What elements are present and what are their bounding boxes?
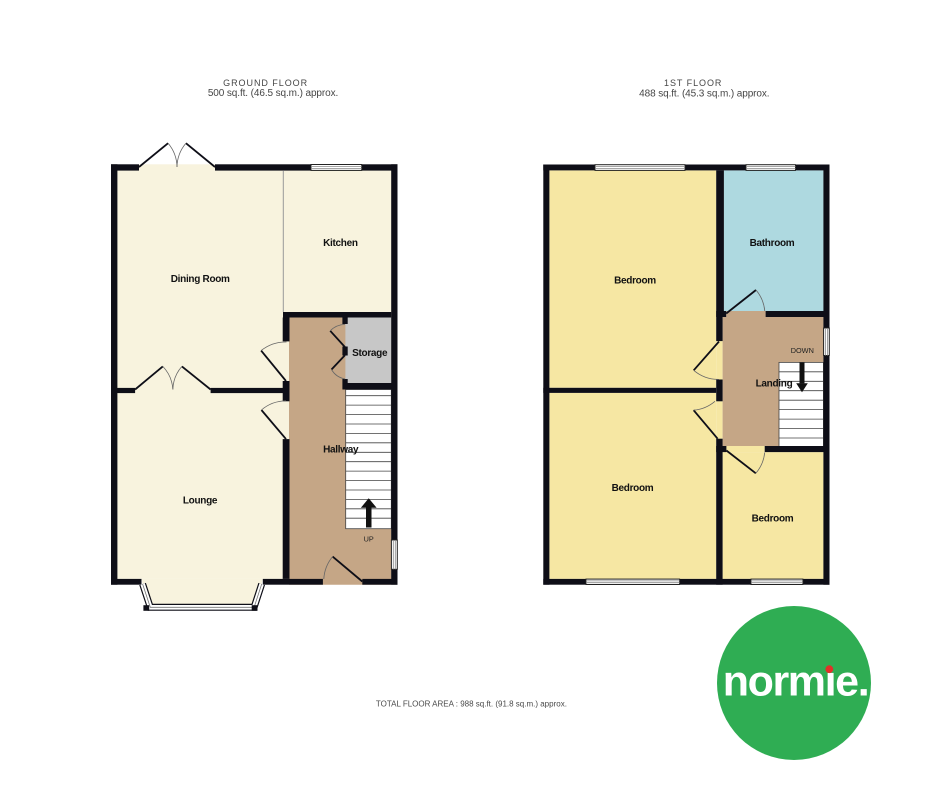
svg-text:UP: UP	[364, 535, 374, 544]
svg-text:DOWN: DOWN	[791, 346, 814, 355]
svg-text:488 sq.ft. (45.3 sq.m.) approx: 488 sq.ft. (45.3 sq.m.) approx.	[639, 88, 769, 99]
svg-text:normıe.: normıe.	[723, 658, 869, 706]
svg-text:Landing: Landing	[756, 378, 793, 389]
svg-text:GROUND FLOOR: GROUND FLOOR	[223, 78, 308, 88]
svg-text:Kitchen: Kitchen	[323, 238, 358, 249]
svg-text:Bedroom: Bedroom	[752, 513, 794, 524]
svg-text:Bathroom: Bathroom	[750, 238, 795, 249]
svg-text:500 sq.ft. (46.5 sq.m.) approx: 500 sq.ft. (46.5 sq.m.) approx.	[208, 88, 338, 99]
svg-text:Bedroom: Bedroom	[614, 276, 656, 287]
svg-text:Storage: Storage	[352, 348, 388, 359]
svg-text:Bedroom: Bedroom	[612, 483, 654, 494]
svg-text:Dining Room: Dining Room	[171, 274, 230, 285]
svg-text:Hallway: Hallway	[323, 444, 359, 455]
svg-text:1ST FLOOR: 1ST FLOOR	[664, 78, 722, 88]
svg-text:TOTAL FLOOR AREA : 988 sq.ft.: TOTAL FLOOR AREA : 988 sq.ft. (91.8 sq.m…	[376, 699, 567, 708]
svg-text:Lounge: Lounge	[183, 496, 218, 507]
